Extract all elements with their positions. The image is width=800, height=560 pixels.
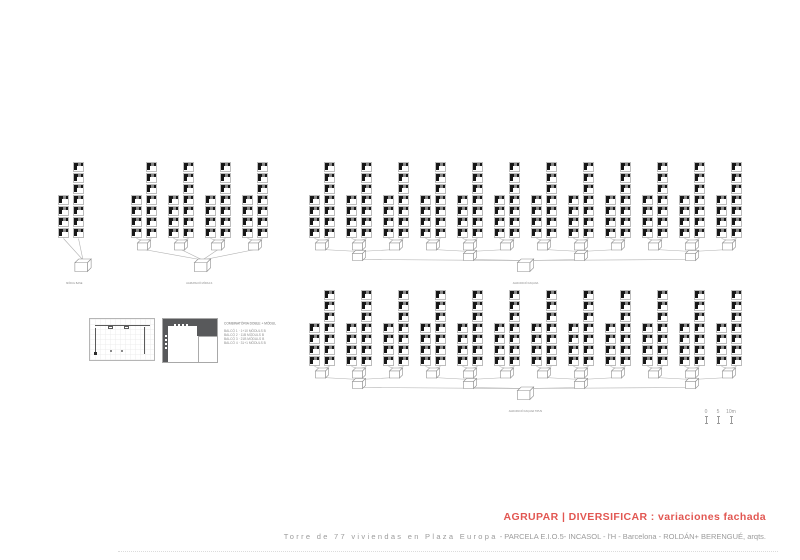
facade-module — [694, 173, 705, 183]
facade-module — [398, 195, 409, 205]
facade-module — [435, 356, 446, 366]
scale-mark: 0 — [700, 409, 712, 424]
facade-module — [546, 345, 557, 355]
facade-module — [183, 184, 194, 194]
facade-module — [509, 312, 520, 322]
facade-module — [346, 195, 357, 205]
facade-module — [694, 312, 705, 322]
facade-module — [146, 195, 157, 205]
facade-module — [257, 173, 268, 183]
facade-module — [568, 334, 579, 344]
facade-module — [620, 345, 631, 355]
facade-module — [58, 195, 69, 205]
facade-module — [472, 301, 483, 311]
plan-wall — [95, 328, 96, 352]
facade-module — [546, 312, 557, 322]
facade-module — [605, 206, 616, 216]
facade-module — [568, 195, 579, 205]
facade-module — [398, 173, 409, 183]
group-caption: AGRUPACIÓ MÒDULS — [131, 273, 268, 291]
module-plan-drawing — [162, 318, 218, 363]
facade-module — [509, 217, 520, 227]
facade-module — [58, 217, 69, 227]
facade-module — [383, 228, 394, 238]
facade-module — [716, 356, 727, 366]
facade-module — [168, 228, 179, 238]
facade-module — [361, 228, 372, 238]
plan-wall-edge — [198, 336, 217, 337]
facade-module — [361, 184, 372, 194]
facade-module — [435, 206, 446, 216]
facade-module — [131, 206, 142, 216]
facade-module — [731, 206, 742, 216]
facade-module — [383, 334, 394, 344]
facade-module — [324, 206, 335, 216]
plan-window — [165, 339, 167, 341]
facade-module — [509, 184, 520, 194]
facade-module — [657, 290, 668, 300]
facade-module — [435, 301, 446, 311]
facade-module — [568, 356, 579, 366]
facade-module — [679, 217, 690, 227]
project-subtitle: Torre de 77 viviendas en Plaza Europa- P… — [284, 532, 766, 541]
facade-module — [58, 228, 69, 238]
facade-module — [531, 228, 542, 238]
facade-module — [642, 195, 653, 205]
plan-window — [174, 324, 176, 326]
facade-module — [568, 323, 579, 333]
facade-module — [605, 345, 616, 355]
facade-module — [435, 173, 446, 183]
facade-module — [546, 173, 557, 183]
facade-module — [309, 217, 320, 227]
facade-module — [420, 356, 431, 366]
facade-module — [324, 312, 335, 322]
facade-module — [620, 334, 631, 344]
facade-module — [620, 290, 631, 300]
facade-module — [472, 312, 483, 322]
scale-tick-icon — [705, 416, 708, 424]
plan-window — [186, 324, 188, 326]
facade-module — [657, 206, 668, 216]
facade-module — [642, 345, 653, 355]
project-details: - PARCELA E.I.O.5- INCASOL - l'H - Barce… — [500, 532, 766, 541]
facade-module — [494, 195, 505, 205]
facade-module — [324, 195, 335, 205]
facade-module — [642, 334, 653, 344]
facade-module — [679, 345, 690, 355]
project-name: Torre de 77 viviendas en Plaza Europa — [284, 532, 498, 541]
facade-module — [731, 345, 742, 355]
facade-module — [620, 217, 631, 227]
facade-module — [605, 195, 616, 205]
plan-window — [165, 343, 167, 345]
floor-plan-drawing — [89, 318, 155, 361]
facade-module — [531, 356, 542, 366]
facade-module — [546, 356, 557, 366]
group-caption: AGRUPACIÓ FAÇANA TIPUS — [309, 401, 742, 419]
facade-module — [694, 162, 705, 172]
facade-module — [435, 334, 446, 344]
facade-module — [361, 206, 372, 216]
facade-module — [346, 228, 357, 238]
facade-module — [716, 323, 727, 333]
facade-module — [457, 334, 468, 344]
facade-module — [168, 195, 179, 205]
facade-module — [457, 323, 468, 333]
facade-module — [509, 323, 520, 333]
plan-window — [165, 347, 167, 349]
facade-module — [205, 206, 216, 216]
facade-module — [731, 173, 742, 183]
facade-module — [220, 217, 231, 227]
facade-module — [546, 162, 557, 172]
facade-module — [220, 195, 231, 205]
group-facade-row-1: AGRUPACIÓ FAÇANA — [309, 162, 742, 287]
facade-module — [73, 217, 84, 227]
facade-module — [679, 195, 690, 205]
facade-module — [494, 323, 505, 333]
group-caption: MÒDUL BASE — [58, 273, 84, 291]
facade-module — [583, 301, 594, 311]
facade-module — [383, 217, 394, 227]
facade-module — [168, 206, 179, 216]
facade-module — [220, 228, 231, 238]
facade-module — [220, 162, 231, 172]
facade-module — [457, 356, 468, 366]
facade-module — [568, 217, 579, 227]
facade-module — [457, 217, 468, 227]
facade-module — [568, 345, 579, 355]
facade-module — [605, 356, 616, 366]
plan-opening — [108, 326, 113, 329]
facade-module — [546, 228, 557, 238]
facade-module — [472, 323, 483, 333]
facade-module — [731, 290, 742, 300]
facade-module — [146, 173, 157, 183]
facade-module — [531, 323, 542, 333]
facade-module — [605, 334, 616, 344]
facade-module — [457, 206, 468, 216]
facade-module — [398, 345, 409, 355]
facade-module — [679, 356, 690, 366]
facade-module — [620, 184, 631, 194]
facade-module — [435, 323, 446, 333]
facade-module — [694, 206, 705, 216]
facade-module — [731, 323, 742, 333]
facade-module — [205, 195, 216, 205]
facade-module — [457, 195, 468, 205]
legend-heading: COMBINATÒRIA DOBLE + MÒDUL — [224, 322, 294, 326]
group-facade-row-2: AGRUPACIÓ FAÇANA TIPUS — [309, 290, 742, 415]
scale-mark: 10m — [723, 409, 739, 424]
legend-item: BALCÓ 4 · 31+1 MÒDULS B — [224, 342, 294, 346]
facade-module — [509, 334, 520, 344]
facade-module — [494, 206, 505, 216]
facade-module — [73, 173, 84, 183]
facade-module — [657, 345, 668, 355]
facade-module — [531, 345, 542, 355]
facade-module — [398, 217, 409, 227]
facade-module — [242, 228, 253, 238]
facade-module — [131, 195, 142, 205]
facade-module — [568, 206, 579, 216]
facade-module — [398, 323, 409, 333]
facade-module — [642, 206, 653, 216]
facade-module — [531, 334, 542, 344]
facade-module — [183, 173, 194, 183]
facade-module — [694, 290, 705, 300]
facade-module — [398, 162, 409, 172]
facade-module — [546, 334, 557, 344]
facade-module — [183, 217, 194, 227]
plan-column — [94, 352, 97, 355]
facade-module — [509, 228, 520, 238]
facade-module — [73, 206, 84, 216]
facade-module — [694, 195, 705, 205]
facade-module — [257, 162, 268, 172]
facade-module — [494, 217, 505, 227]
facade-module — [257, 217, 268, 227]
facade-module — [435, 312, 446, 322]
facade-module — [731, 195, 742, 205]
facade-module — [583, 228, 594, 238]
plan-wall — [95, 325, 150, 326]
facade-module — [642, 228, 653, 238]
facade-module — [220, 206, 231, 216]
facade-module — [657, 323, 668, 333]
facade-module — [383, 195, 394, 205]
facade-module — [472, 228, 483, 238]
facade-module — [509, 301, 520, 311]
facade-module — [531, 206, 542, 216]
facade-module — [620, 162, 631, 172]
grouping-lines — [309, 162, 742, 282]
facade-module — [657, 301, 668, 311]
facade-module — [398, 228, 409, 238]
facade-module — [657, 334, 668, 344]
facade-module — [420, 217, 431, 227]
plan-wall — [197, 319, 217, 336]
facade-module — [642, 356, 653, 366]
facade-module — [457, 345, 468, 355]
facade-module — [205, 228, 216, 238]
facade-module — [716, 334, 727, 344]
facade-module — [583, 184, 594, 194]
plan-window — [182, 324, 184, 326]
facade-module — [694, 323, 705, 333]
plan-mark — [121, 350, 123, 352]
facade-module — [73, 184, 84, 194]
scale-label: 0 — [700, 409, 712, 415]
board-title: AGRUPAR | DIVERSIFICAR : variaciones fac… — [284, 511, 766, 523]
facade-module — [546, 184, 557, 194]
facade-module — [546, 206, 557, 216]
facade-module — [257, 184, 268, 194]
facade-module — [657, 228, 668, 238]
scale-bar: 0 5 10m — [700, 409, 744, 425]
facade-module — [472, 290, 483, 300]
facade-module — [605, 323, 616, 333]
facade-module — [620, 301, 631, 311]
facade-module — [146, 228, 157, 238]
presentation-sheet: MÒDUL BASEAGRUPACIÓ MÒDULSAGRUPACIÓ FAÇA… — [0, 0, 800, 560]
facade-module — [131, 228, 142, 238]
facade-module — [361, 312, 372, 322]
facade-module — [583, 162, 594, 172]
facade-module — [420, 206, 431, 216]
facade-module — [546, 217, 557, 227]
facade-module — [731, 312, 742, 322]
facade-module — [73, 228, 84, 238]
group-single-pair: MÒDUL BASE — [58, 162, 84, 287]
facade-module — [398, 334, 409, 344]
facade-module — [583, 173, 594, 183]
facade-module — [494, 345, 505, 355]
facade-module — [73, 195, 84, 205]
facade-module — [420, 228, 431, 238]
facade-module — [679, 228, 690, 238]
facade-module — [509, 356, 520, 366]
facade-module — [583, 290, 594, 300]
facade-module — [242, 206, 253, 216]
facade-module — [731, 334, 742, 344]
facade-module — [620, 356, 631, 366]
facade-module — [509, 290, 520, 300]
facade-module — [220, 173, 231, 183]
facade-module — [361, 290, 372, 300]
facade-module — [716, 195, 727, 205]
facade-module — [583, 312, 594, 322]
plan-window — [178, 324, 180, 326]
facade-module — [494, 228, 505, 238]
plan-partition — [198, 336, 199, 362]
facade-module — [383, 356, 394, 366]
facade-module — [694, 345, 705, 355]
facade-module — [420, 345, 431, 355]
facade-module — [731, 356, 742, 366]
facade-module — [620, 173, 631, 183]
facade-module — [457, 228, 468, 238]
facade-module — [324, 184, 335, 194]
scale-tick-icon — [730, 416, 733, 424]
facade-module — [694, 184, 705, 194]
facade-module — [183, 206, 194, 216]
facade-module — [679, 323, 690, 333]
facade-module — [398, 301, 409, 311]
facade-module — [472, 173, 483, 183]
facade-module — [309, 195, 320, 205]
facade-module — [383, 323, 394, 333]
facade-module — [642, 217, 653, 227]
facade-module — [509, 345, 520, 355]
facade-module — [472, 334, 483, 344]
facade-module — [620, 206, 631, 216]
facade-module — [583, 345, 594, 355]
facade-module — [183, 162, 194, 172]
facade-module — [309, 206, 320, 216]
facade-module — [546, 290, 557, 300]
facade-module — [324, 290, 335, 300]
legend: COMBINATÒRIA DOBLE + MÒDUL BALCÓ 1 · 1+1… — [224, 322, 364, 369]
facade-module — [657, 217, 668, 227]
plan-mark — [110, 350, 112, 352]
facade-module — [509, 195, 520, 205]
facade-module — [657, 312, 668, 322]
facade-module — [546, 323, 557, 333]
facade-module — [657, 195, 668, 205]
facade-module — [324, 228, 335, 238]
facade-module — [657, 356, 668, 366]
facade-module — [324, 301, 335, 311]
facade-module — [620, 323, 631, 333]
facade-module — [583, 323, 594, 333]
facade-module — [361, 195, 372, 205]
facade-module — [383, 206, 394, 216]
facade-module — [583, 206, 594, 216]
facade-module — [546, 301, 557, 311]
facade-module — [58, 206, 69, 216]
facade-module — [731, 228, 742, 238]
facade-module — [220, 184, 231, 194]
facade-module — [472, 217, 483, 227]
facade-module — [531, 217, 542, 227]
facade-module — [494, 334, 505, 344]
facade-module — [694, 334, 705, 344]
facade-module — [494, 356, 505, 366]
facade-module — [620, 228, 631, 238]
facade-module — [583, 356, 594, 366]
facade-module — [324, 162, 335, 172]
grouping-lines — [309, 290, 742, 410]
facade-module — [242, 217, 253, 227]
facade-module — [472, 184, 483, 194]
plan-opening — [124, 326, 129, 329]
facade-module — [435, 217, 446, 227]
facade-module — [324, 217, 335, 227]
facade-module — [435, 228, 446, 238]
facade-module — [242, 195, 253, 205]
facade-module — [324, 173, 335, 183]
facade-module — [679, 206, 690, 216]
facade-module — [146, 206, 157, 216]
facade-module — [509, 206, 520, 216]
facade-module — [679, 334, 690, 344]
facade-module — [346, 217, 357, 227]
facade-module — [361, 173, 372, 183]
facade-module — [716, 345, 727, 355]
facade-module — [531, 195, 542, 205]
facade-module — [435, 184, 446, 194]
facade-module — [435, 162, 446, 172]
facade-module — [398, 290, 409, 300]
plan-window — [165, 335, 167, 337]
facade-module — [694, 217, 705, 227]
facade-module — [472, 206, 483, 216]
plan-wall — [144, 327, 145, 354]
facade-module — [361, 162, 372, 172]
facade-module — [657, 184, 668, 194]
facade-module — [546, 195, 557, 205]
facade-module — [383, 345, 394, 355]
facade-module — [257, 195, 268, 205]
facade-module — [472, 356, 483, 366]
facade-module — [398, 312, 409, 322]
facade-module — [346, 206, 357, 216]
facade-module — [420, 195, 431, 205]
facade-module — [435, 195, 446, 205]
footer: AGRUPAR | DIVERSIFICAR : variaciones fac… — [284, 511, 766, 541]
